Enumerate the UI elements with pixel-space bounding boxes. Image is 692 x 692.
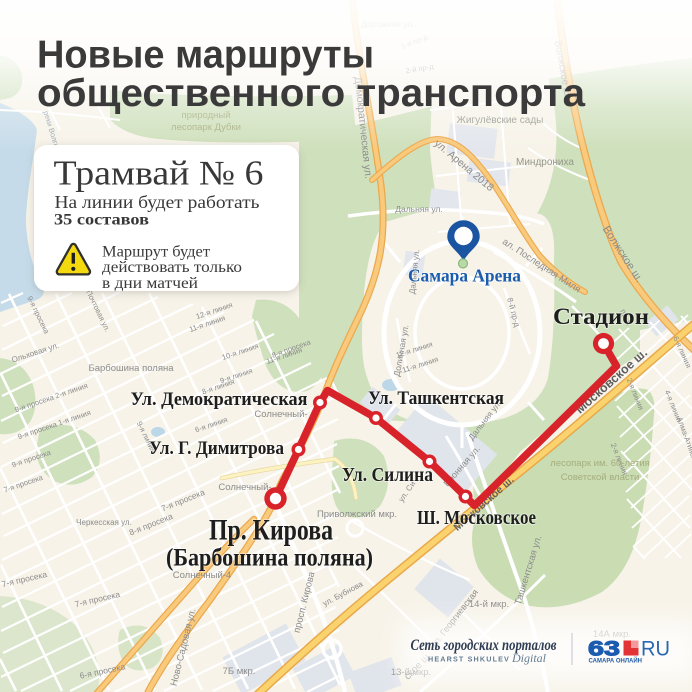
svg-text:(Барбошина поляна): (Барбошина поляна) [166, 545, 373, 572]
svg-text:Стадион: Стадион [553, 304, 649, 329]
svg-text:Digital: Digital [511, 651, 547, 665]
svg-text:Ул. Силина: Ул. Силина [342, 465, 433, 486]
svg-text:действовать только: действовать только [102, 259, 242, 276]
svg-text:Ул. Демократическая: Ул. Демократическая [131, 389, 308, 410]
svg-text:7Б мкр.: 7Б мкр. [223, 666, 256, 677]
svg-text:Солнечный-4: Солнечный-4 [173, 570, 231, 581]
svg-text:общественного транспорта: общественного транспорта [37, 72, 586, 115]
svg-text:Солнечный-: Солнечный- [218, 482, 271, 493]
svg-text:63: 63 [588, 638, 620, 661]
svg-text:Черкесская ул.: Черкесская ул. [76, 518, 132, 527]
svg-text:На линии будет работать: На линии будет работать [55, 192, 260, 212]
svg-text:Маршрут будет: Маршрут будет [102, 244, 210, 261]
svg-text:35 составов: 35 составов [54, 212, 149, 229]
svg-text:Дальняя ул.: Дальняя ул. [395, 204, 443, 214]
svg-text:Ш. Московское: Ш. Московское [417, 507, 536, 529]
svg-text:Новые маршруты: Новые маршруты [37, 34, 374, 77]
svg-text:HEARST SHKULEV: HEARST SHKULEV [428, 655, 510, 664]
svg-text:лесопарк им. 60-летия: лесопарк им. 60-летия [550, 458, 650, 469]
svg-text:Ул. Ташкентская: Ул. Ташкентская [368, 388, 504, 409]
svg-text:Солнечный-: Солнечный- [254, 409, 307, 420]
svg-text:14-й мкр.: 14-й мкр. [469, 599, 509, 610]
svg-text:в дни матчей: в дни матчей [102, 275, 198, 292]
svg-text:САМАРА ОНЛАЙН: САМАРА ОНЛАЙН [589, 657, 643, 665]
svg-text:Пр. Кирова: Пр. Кирова [209, 514, 333, 547]
svg-text:Советской власти: Советской власти [561, 472, 640, 483]
svg-text:Миндрониха: Миндрониха [516, 157, 574, 168]
svg-text:RU: RU [641, 638, 670, 661]
svg-text:Ул. Г. Димитрова: Ул. Г. Димитрова [149, 438, 284, 459]
svg-text:Самара Арена: Самара Арена [408, 266, 521, 286]
svg-text:Барбошина поляна: Барбошина поляна [88, 363, 174, 374]
svg-text:Трамвай № 6: Трамвай № 6 [54, 155, 264, 193]
